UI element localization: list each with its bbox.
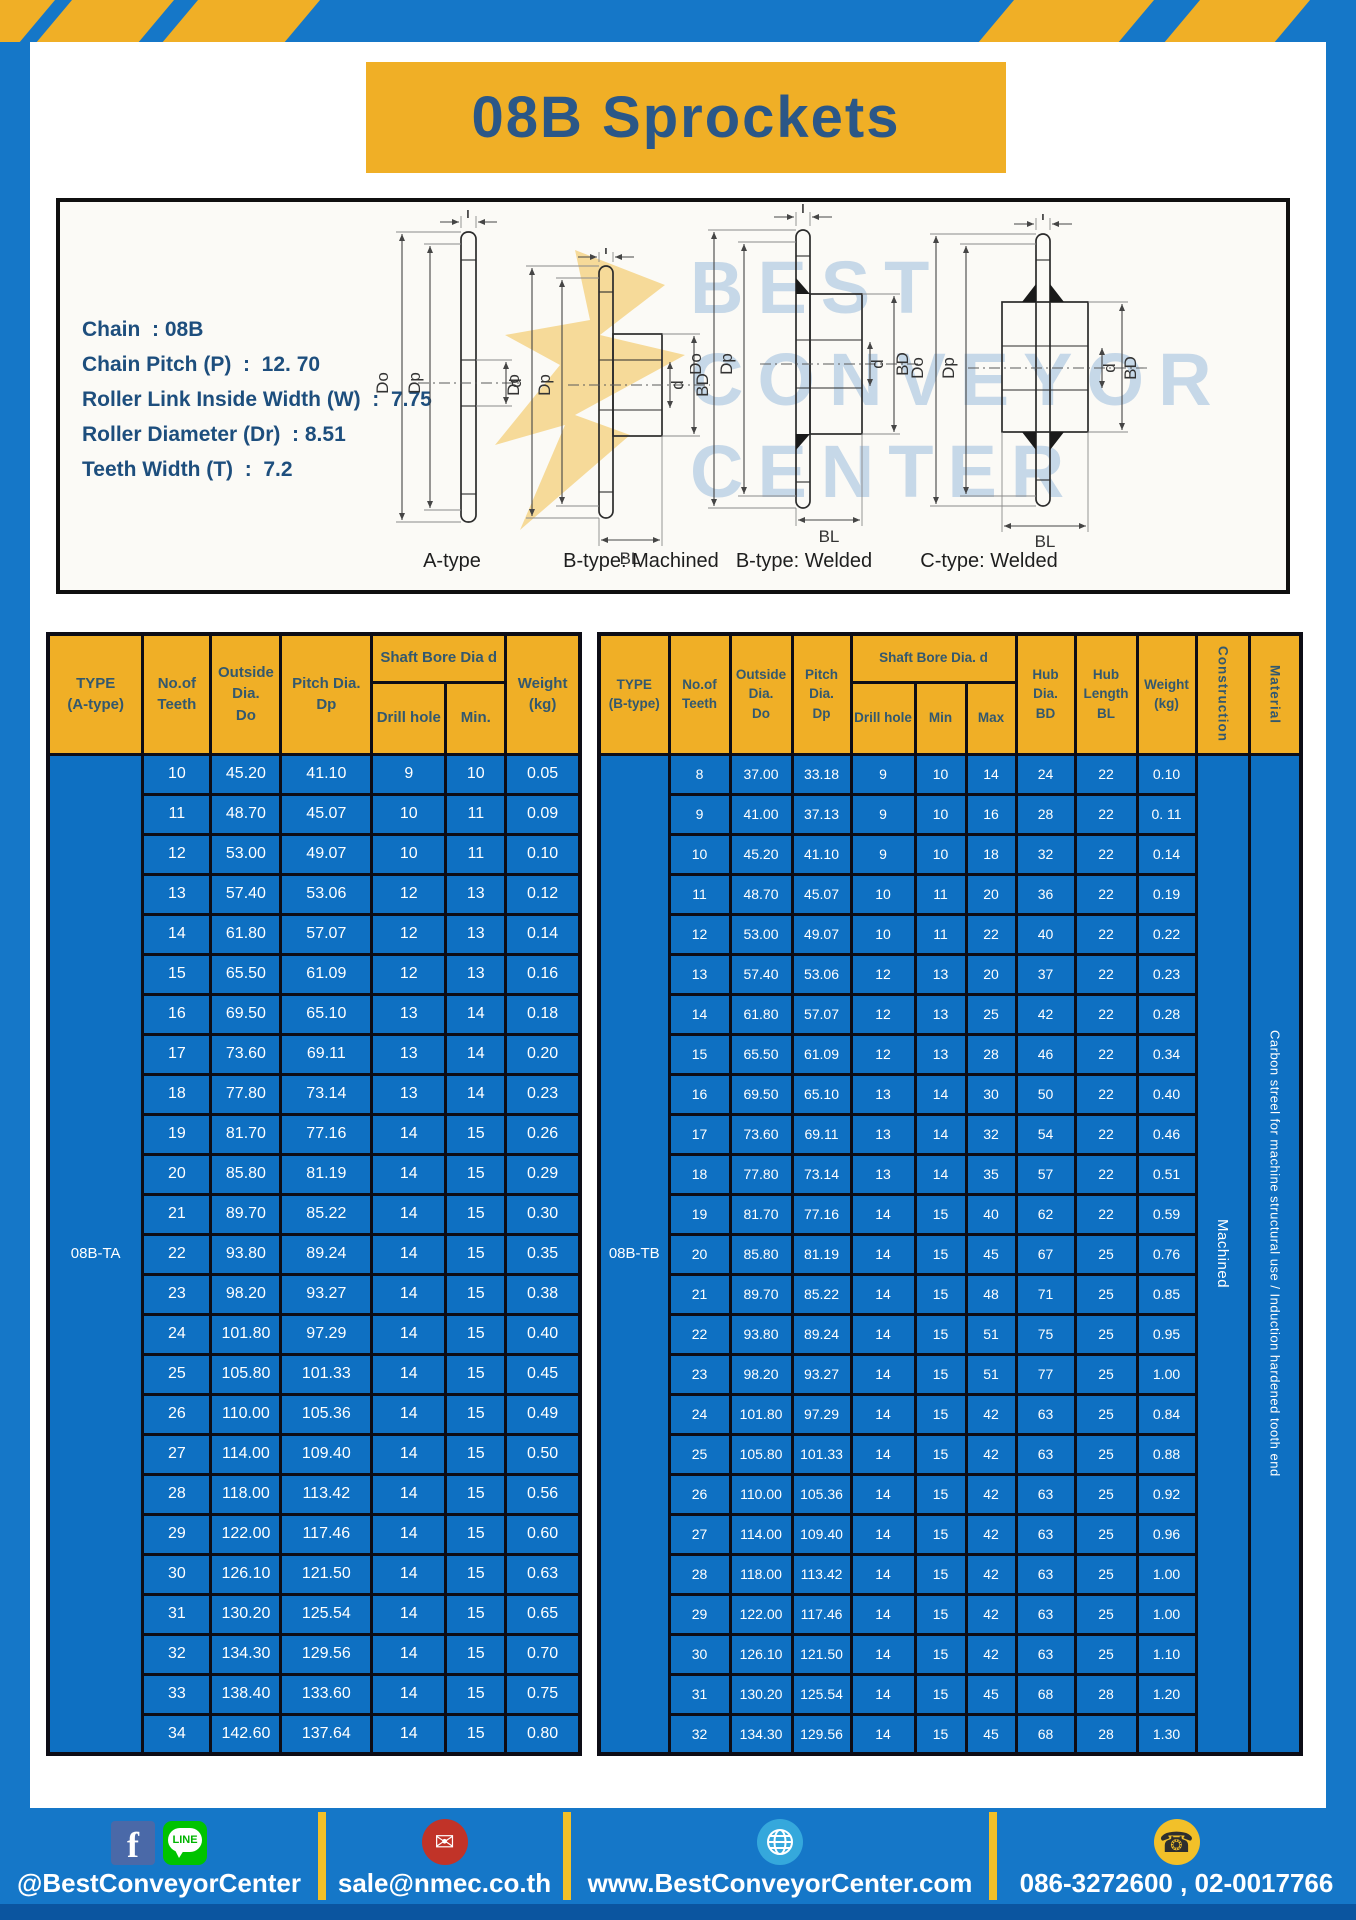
svg-text:T: T <box>798 204 808 217</box>
header-teeth: No.of Teeth <box>143 634 211 754</box>
table-cell: 93.80 <box>211 1234 281 1274</box>
table-cell: 14 <box>372 1114 446 1154</box>
table-cell: 14 <box>372 1274 446 1314</box>
table-cell: 14 <box>372 1314 446 1354</box>
table-row: 26110.00105.3614154263250.92 <box>599 1474 1301 1514</box>
table-cell: 0.12 <box>506 874 580 914</box>
table-row: 1357.4053.0612132037220.23 <box>599 954 1301 994</box>
table-row: 29122.00117.4614154263251.00 <box>599 1594 1301 1634</box>
table-cell: 0.40 <box>1137 1074 1196 1114</box>
table-cell: 138.40 <box>211 1674 281 1714</box>
table-cell: 137.64 <box>281 1714 372 1754</box>
table-cell: 0.63 <box>506 1554 580 1594</box>
table-cell: 0.85 <box>1137 1274 1196 1314</box>
table-cell: 14 <box>915 1114 966 1154</box>
table-cell: 12 <box>669 914 730 954</box>
table-cell: 63 <box>1016 1634 1075 1674</box>
table-cell: 0.60 <box>506 1514 580 1554</box>
table-cell: 0. 11 <box>1137 794 1196 834</box>
table-cell: 0.14 <box>1137 834 1196 874</box>
table-cell: 101.33 <box>792 1434 851 1474</box>
table-cell: 0.09 <box>506 794 580 834</box>
table-cell: 98.20 <box>730 1354 792 1394</box>
table-cell: 14 <box>966 754 1016 794</box>
table-cell: 12 <box>372 874 446 914</box>
header-shaft-bore: Shaft Bore Dia. d <box>851 634 1016 682</box>
header-min: Min. <box>446 682 506 754</box>
table-cell: 18 <box>143 1074 211 1114</box>
table-cell: 28 <box>1016 794 1075 834</box>
table-cell: 45.20 <box>211 754 281 794</box>
table-cell: 14 <box>372 1714 446 1754</box>
table-cell: 9 <box>851 794 915 834</box>
table-cell: 15 <box>446 1514 506 1554</box>
footer-phone-section: ☎ 086-3272600 , 02-0017766 <box>997 1808 1356 1904</box>
footer-divider <box>318 1812 326 1900</box>
table-cell: 15 <box>915 1434 966 1474</box>
table-cell: 28 <box>1075 1714 1137 1754</box>
yellow-stripe <box>979 0 1154 42</box>
line-bubble-label: LINE <box>168 1828 202 1852</box>
table-cell: 35 <box>966 1154 1016 1194</box>
top-decorative-bar <box>0 0 1356 42</box>
facebook-icon: f <box>111 1821 155 1865</box>
table-cell: 0.14 <box>506 914 580 954</box>
table-row: 25105.80101.3314154263250.88 <box>599 1434 1301 1474</box>
table-cell: 11 <box>915 914 966 954</box>
table-cell: 0.18 <box>506 994 580 1034</box>
table-cell: 73.14 <box>281 1074 372 1114</box>
table-cell: 22 <box>966 914 1016 954</box>
table-cell: 14 <box>143 914 211 954</box>
table-row: 24101.8097.2914154263250.84 <box>599 1394 1301 1434</box>
svg-text:Do: Do <box>373 372 392 394</box>
table-cell: 45.20 <box>730 834 792 874</box>
phone-numbers: 086-3272600 , 02-0017766 <box>1020 1868 1334 1899</box>
table-cell: 13 <box>851 1154 915 1194</box>
table-cell: 0.80 <box>506 1714 580 1754</box>
table-cell: 12 <box>851 1034 915 1074</box>
table-cell: 14 <box>372 1514 446 1554</box>
header-hub-length: Hub Length BL <box>1075 634 1137 754</box>
table-cell: 9 <box>669 794 730 834</box>
table-cell: 14 <box>851 1674 915 1714</box>
table-cell: 85.80 <box>730 1234 792 1274</box>
table-cell: 117.46 <box>281 1514 372 1554</box>
table-cell: 0.30 <box>506 1194 580 1234</box>
table-cell: 22 <box>1075 834 1137 874</box>
table-cell: 15 <box>915 1634 966 1674</box>
table-cell: 42 <box>966 1434 1016 1474</box>
table-cell: 129.56 <box>792 1714 851 1754</box>
table-cell: 22 <box>1075 1114 1137 1154</box>
svg-text:d: d <box>668 380 687 389</box>
table-cell: 0.76 <box>1137 1234 1196 1274</box>
table-cell: 0.35 <box>506 1234 580 1274</box>
table-cell: 14 <box>851 1234 915 1274</box>
table-cell: 63 <box>1016 1394 1075 1434</box>
table-cell: 105.80 <box>730 1434 792 1474</box>
table-cell: 14 <box>446 1074 506 1114</box>
table-cell: 10 <box>372 834 446 874</box>
email-address: sale@nmec.co.th <box>338 1868 551 1899</box>
yellow-stripe <box>1165 0 1310 42</box>
table-cell: 22 <box>1075 794 1137 834</box>
table-row: 08B-TB837.0033.189101424220.10MachinedCa… <box>599 754 1301 794</box>
header-outside-dia: Outside Dia. Do <box>730 634 792 754</box>
table-cell: 14 <box>372 1194 446 1234</box>
table-cell: 15 <box>446 1714 506 1754</box>
svg-text:Dp: Dp <box>535 374 554 396</box>
table-cell: 97.29 <box>281 1314 372 1354</box>
table-cell: 61.80 <box>730 994 792 1034</box>
table-cell: 22 <box>1075 954 1137 994</box>
diagram-panel: BEST CONVEYOR CENTER Chain : 08B Chain P… <box>56 198 1290 594</box>
table-cell: 11 <box>446 794 506 834</box>
table-cell: 15 <box>446 1274 506 1314</box>
table-cell: 30 <box>669 1634 730 1674</box>
table-cell: 0.10 <box>1137 754 1196 794</box>
table-cell: 40 <box>1016 914 1075 954</box>
table-cell: 61.80 <box>211 914 281 954</box>
c-type-welded-drawing: Do Dp d BD BL T <box>910 214 1155 549</box>
table-cell: 25 <box>1075 1514 1137 1554</box>
table-cell: 1.10 <box>1137 1634 1196 1674</box>
table-cell: 15 <box>915 1474 966 1514</box>
table-cell: 118.00 <box>211 1474 281 1514</box>
table-cell: 0.75 <box>506 1674 580 1714</box>
table-cell: 15 <box>915 1514 966 1554</box>
table-cell: 41.10 <box>281 754 372 794</box>
table-cell: 14 <box>446 1034 506 1074</box>
table-cell: 12 <box>143 834 211 874</box>
svg-text:Do: Do <box>504 374 523 396</box>
table-row: 32134.30129.5614154568281.30 <box>599 1714 1301 1754</box>
table-cell: 85.80 <box>211 1154 281 1194</box>
table-cell: 65.10 <box>792 1074 851 1114</box>
table-cell: 23 <box>143 1274 211 1314</box>
table-cell: 110.00 <box>730 1474 792 1514</box>
table-cell: 68 <box>1016 1714 1075 1754</box>
table-cell: 0.88 <box>1137 1434 1196 1474</box>
table-cell: 45 <box>966 1714 1016 1754</box>
header-teeth: No.of Teeth <box>669 634 730 754</box>
table-cell: 77.80 <box>730 1154 792 1194</box>
table-cell: 0.65 <box>506 1594 580 1634</box>
table-row: 27114.00109.4014154263250.96 <box>599 1514 1301 1554</box>
table-row: 1253.0049.0710112240220.22 <box>599 914 1301 954</box>
table-cell: 14 <box>915 1074 966 1114</box>
table-cell: 14 <box>372 1154 446 1194</box>
table-cell: 25 <box>1075 1434 1137 1474</box>
table-cell: 29 <box>143 1514 211 1554</box>
table-cell: 118.00 <box>730 1554 792 1594</box>
line-icon: LINE <box>163 1821 207 1865</box>
table-cell: 0.34 <box>1137 1034 1196 1074</box>
table-cell: 10 <box>669 834 730 874</box>
table-cell: 105.36 <box>792 1474 851 1514</box>
table-cell: 13 <box>143 874 211 914</box>
table-cell: 28 <box>1075 1674 1137 1714</box>
title-banner: 08B Sprockets <box>366 62 1006 173</box>
svg-text:T: T <box>463 210 473 222</box>
table-cell: 21 <box>143 1194 211 1234</box>
table-cell: 22 <box>1075 1154 1137 1194</box>
table-row: 2398.2093.2714155177251.00 <box>599 1354 1301 1394</box>
table-cell: 14 <box>372 1674 446 1714</box>
table-cell: 25 <box>966 994 1016 1034</box>
table-cell: 45 <box>966 1674 1016 1714</box>
table-cell: 24 <box>1016 754 1075 794</box>
svg-text:T: T <box>601 248 611 258</box>
table-cell: 13 <box>372 1074 446 1114</box>
table-cell: 125.54 <box>792 1674 851 1714</box>
table-cell: 24 <box>143 1314 211 1354</box>
table-row: 2293.8089.2414155175250.95 <box>599 1314 1301 1354</box>
table-cell: 12 <box>851 954 915 994</box>
table-cell: 67 <box>1016 1234 1075 1274</box>
table-cell: 48 <box>966 1274 1016 1314</box>
table-cell: 15 <box>446 1554 506 1594</box>
table-cell: 21 <box>669 1274 730 1314</box>
table-cell: 57.07 <box>281 914 372 954</box>
table-cell: 126.10 <box>730 1634 792 1674</box>
table-cell: 13 <box>915 954 966 994</box>
table-cell: 37.00 <box>730 754 792 794</box>
table-cell: 121.50 <box>281 1554 372 1594</box>
table-cell: 77.16 <box>792 1194 851 1234</box>
table-cell: 93.80 <box>730 1314 792 1354</box>
table-cell: 22 <box>1075 914 1137 954</box>
table-cell: 15 <box>915 1354 966 1394</box>
table-cell: 19 <box>669 1194 730 1234</box>
table-cell: 63 <box>1016 1554 1075 1594</box>
table-cell: 45.07 <box>281 794 372 834</box>
table-cell: 69.11 <box>792 1114 851 1154</box>
table-cell: 23 <box>669 1354 730 1394</box>
table-cell: 1.00 <box>1137 1594 1196 1634</box>
svg-text:Dp: Dp <box>405 372 424 394</box>
table-cell: 69.11 <box>281 1034 372 1074</box>
table-cell: 69.50 <box>211 994 281 1034</box>
table-cell: 0.40 <box>506 1314 580 1354</box>
table-cell: 54 <box>1016 1114 1075 1154</box>
table-cell: 77.80 <box>211 1074 281 1114</box>
table-cell: 15 <box>446 1314 506 1354</box>
table-cell: 25 <box>1075 1634 1137 1674</box>
table-cell: 89.24 <box>792 1314 851 1354</box>
table-cell: 93.27 <box>792 1354 851 1394</box>
table-cell: 101.80 <box>211 1314 281 1354</box>
svg-text:Dp: Dp <box>717 353 736 375</box>
footer-email-section: ✉ sale@nmec.co.th <box>326 1808 563 1904</box>
table-cell: 41.10 <box>792 834 851 874</box>
table-cell: 13 <box>446 914 506 954</box>
table-row: 1565.5061.0912132846220.34 <box>599 1034 1301 1074</box>
table-cell: 75 <box>1016 1314 1075 1354</box>
table-cell: 42 <box>966 1394 1016 1434</box>
table-cell: 49.07 <box>792 914 851 954</box>
table-cell: 14 <box>851 1634 915 1674</box>
table-cell: 45.07 <box>792 874 851 914</box>
table-cell: 77.16 <box>281 1114 372 1154</box>
table-cell: 46 <box>1016 1034 1075 1074</box>
header-drill-hole: Drill hole <box>372 682 446 754</box>
table-cell: 14 <box>851 1554 915 1594</box>
table-cell: 15 <box>915 1234 966 1274</box>
table-cell: 13 <box>372 1034 446 1074</box>
table-cell: 14 <box>851 1354 915 1394</box>
header-pitch-dia: Pitch Dia. Dp <box>281 634 372 754</box>
table-row: 941.0037.139101628220. 11 <box>599 794 1301 834</box>
table-cell: 15 <box>915 1714 966 1754</box>
table-cell: 85.22 <box>281 1194 372 1234</box>
table-cell: 9 <box>851 754 915 794</box>
table-cell: 9 <box>851 834 915 874</box>
table-cell: 42 <box>966 1554 1016 1594</box>
table-cell: 22 <box>669 1314 730 1354</box>
table-cell: 10 <box>143 754 211 794</box>
table-row: 1461.8057.0712132542220.28 <box>599 994 1301 1034</box>
table-cell: 13 <box>851 1074 915 1114</box>
table-cell: 15 <box>915 1394 966 1434</box>
table-cell: 0.95 <box>1137 1314 1196 1354</box>
table-cell: 0.28 <box>1137 994 1196 1034</box>
table-cell: 71 <box>1016 1274 1075 1314</box>
table-cell: 98.20 <box>211 1274 281 1314</box>
table-cell: 0.23 <box>1137 954 1196 994</box>
table-cell: 22 <box>1075 1074 1137 1114</box>
table-cell: 32 <box>966 1114 1016 1154</box>
table-cell: 73.14 <box>792 1154 851 1194</box>
table-cell: 101.80 <box>730 1394 792 1434</box>
table-cell: 14 <box>372 1554 446 1594</box>
table-cell: 26 <box>669 1474 730 1514</box>
table-cell: 14 <box>446 994 506 1034</box>
type-cell: 08B-TA <box>48 754 143 1754</box>
table-cell: 0.26 <box>506 1114 580 1154</box>
svg-text:d: d <box>868 359 887 368</box>
table-cell: 122.00 <box>211 1514 281 1554</box>
table-cell: 16 <box>143 994 211 1034</box>
header-construction: Construction <box>1196 634 1249 754</box>
table-cell: 10 <box>915 794 966 834</box>
table-cell: 25 <box>143 1354 211 1394</box>
table-cell: 133.60 <box>281 1674 372 1714</box>
material-cell: Carbon streel for machine structural use… <box>1249 754 1301 1754</box>
table-cell: 14 <box>372 1634 446 1674</box>
table-cell: 25 <box>1075 1394 1137 1434</box>
table-cell: 0.84 <box>1137 1394 1196 1434</box>
table-cell: 11 <box>446 834 506 874</box>
table-cell: 14 <box>372 1394 446 1434</box>
mail-icon: ✉ <box>422 1819 468 1865</box>
table-cell: 22 <box>1075 1194 1137 1234</box>
table-cell: 37.13 <box>792 794 851 834</box>
table-cell: 28 <box>966 1034 1016 1074</box>
table-cell: 32 <box>143 1634 211 1674</box>
a-type-table-body: 08B-TA1045.2041.109100.051148.7045.07101… <box>48 754 580 1754</box>
table-cell: 51 <box>966 1354 1016 1394</box>
footer-divider <box>989 1812 997 1900</box>
table-cell: 109.40 <box>792 1514 851 1554</box>
table-cell: 11 <box>669 874 730 914</box>
drawing-caption: C-type: Welded <box>879 550 1099 573</box>
table-cell: 122.00 <box>730 1594 792 1634</box>
table-cell: 13 <box>669 954 730 994</box>
table-cell: 12 <box>851 994 915 1034</box>
table-cell: 15 <box>446 1394 506 1434</box>
table-cell: 0.05 <box>506 754 580 794</box>
table-cell: 93.27 <box>281 1274 372 1314</box>
table-cell: 14 <box>372 1354 446 1394</box>
table-cell: 18 <box>669 1154 730 1194</box>
svg-text:Do: Do <box>690 353 705 375</box>
table-cell: 73.60 <box>730 1114 792 1154</box>
table-cell: 17 <box>143 1034 211 1074</box>
table-cell: 25 <box>1075 1234 1137 1274</box>
table-cell: 53.00 <box>730 914 792 954</box>
footer-divider <box>563 1812 571 1900</box>
header-outside-dia: Outside Dia. Do <box>211 634 281 754</box>
table-cell: 14 <box>851 1314 915 1354</box>
table-cell: 27 <box>669 1514 730 1554</box>
header-material: Material <box>1249 634 1301 754</box>
table-cell: 65.50 <box>211 954 281 994</box>
table-cell: 49.07 <box>281 834 372 874</box>
b-type-machined-drawing: Do Dp d BD BL T <box>502 248 717 583</box>
table-cell: 24 <box>669 1394 730 1434</box>
table-cell: 68 <box>1016 1674 1075 1714</box>
table-cell: 89.24 <box>281 1234 372 1274</box>
table-cell: 22 <box>1075 994 1137 1034</box>
table-cell: 22 <box>1075 1034 1137 1074</box>
table-cell: 81.70 <box>211 1114 281 1154</box>
svg-text:T: T <box>1038 214 1048 224</box>
table-cell: 15 <box>446 1234 506 1274</box>
table-cell: 134.30 <box>730 1714 792 1754</box>
table-cell: 63 <box>1016 1434 1075 1474</box>
table-cell: 25 <box>669 1434 730 1474</box>
table-cell: 57 <box>1016 1154 1075 1194</box>
table-cell: 0.16 <box>506 954 580 994</box>
table-cell: 142.60 <box>211 1714 281 1754</box>
table-cell: 13 <box>372 994 446 1034</box>
table-cell: 1.00 <box>1137 1354 1196 1394</box>
table-cell: 31 <box>143 1594 211 1634</box>
table-cell: 20 <box>966 954 1016 994</box>
table-cell: 57.40 <box>211 874 281 914</box>
table-cell: 25 <box>1075 1474 1137 1514</box>
table-row: 30126.10121.5014154263251.10 <box>599 1634 1301 1674</box>
table-cell: 14 <box>669 994 730 1034</box>
table-cell: 15 <box>446 1154 506 1194</box>
table-cell: 45 <box>966 1234 1016 1274</box>
table-cell: 15 <box>915 1314 966 1354</box>
table-row: 1981.7077.1614154062220.59 <box>599 1194 1301 1234</box>
table-cell: 13 <box>446 954 506 994</box>
table-cell: 0.22 <box>1137 914 1196 954</box>
table-cell: 0.19 <box>1137 874 1196 914</box>
svg-text:d: d <box>1100 363 1119 372</box>
table-cell: 37 <box>1016 954 1075 994</box>
table-cell: 14 <box>372 1434 446 1474</box>
table-cell: 25 <box>1075 1354 1137 1394</box>
table-cell: 10 <box>446 754 506 794</box>
table-cell: 51 <box>966 1314 1016 1354</box>
table-cell: 19 <box>143 1114 211 1154</box>
table-cell: 14 <box>851 1714 915 1754</box>
